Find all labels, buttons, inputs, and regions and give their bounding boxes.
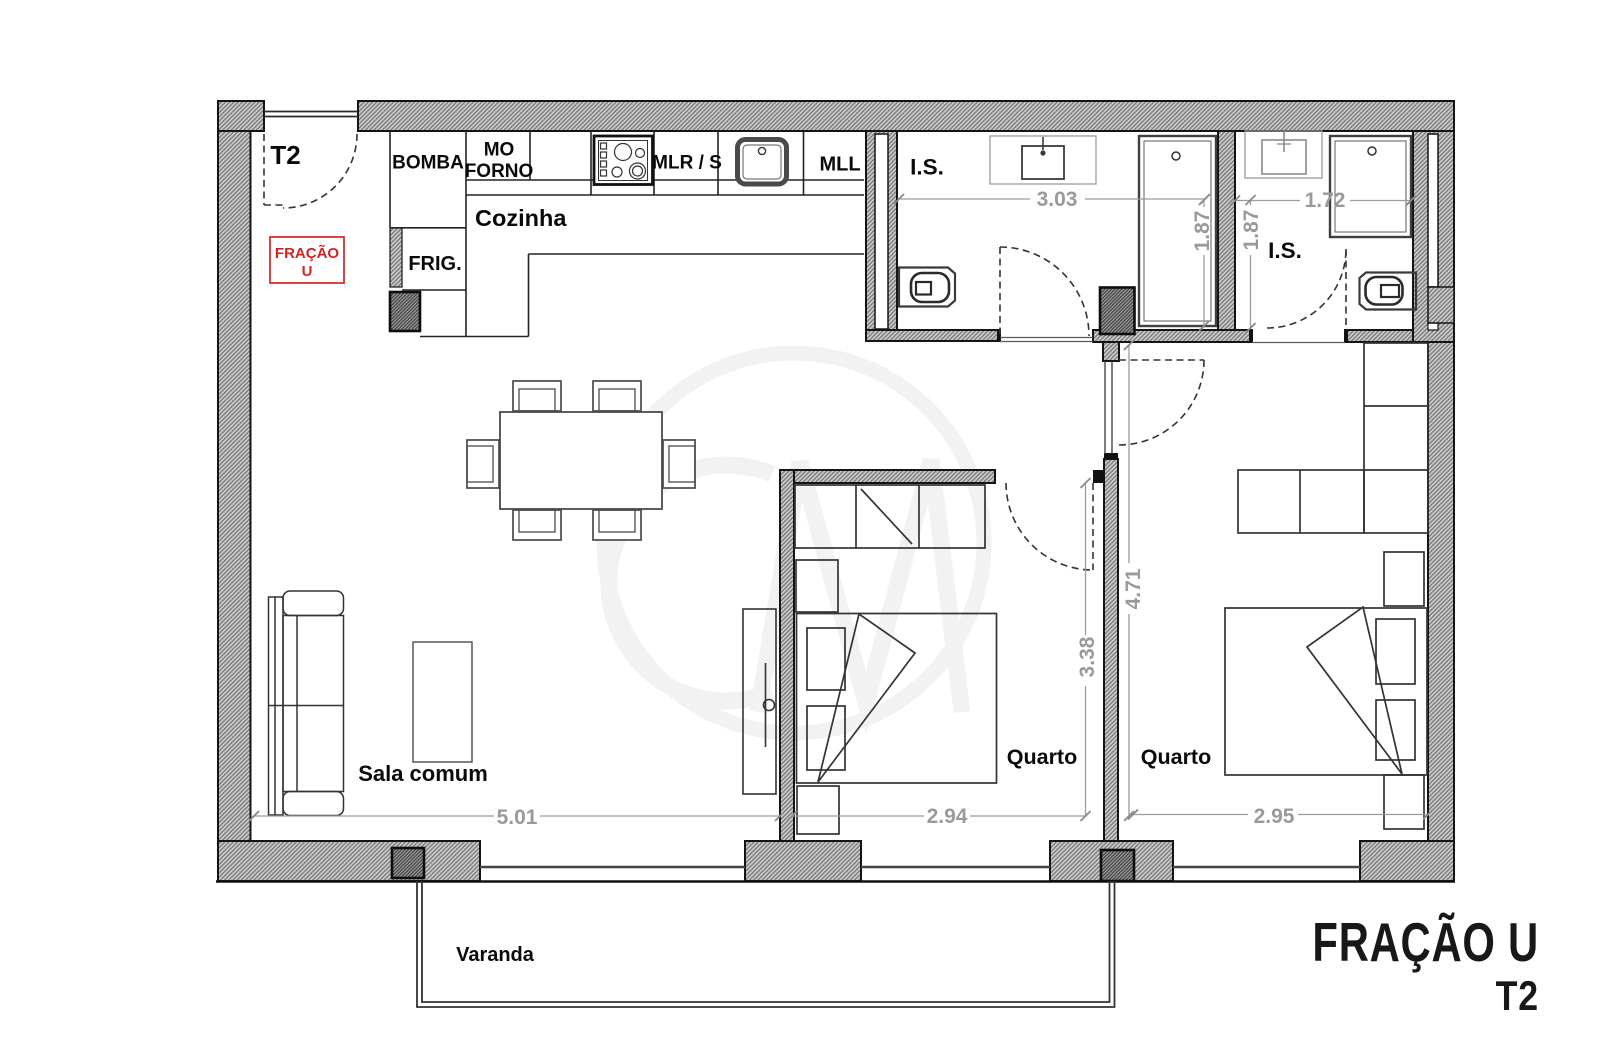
svg-text:I.S.: I.S. [1268, 238, 1302, 263]
svg-text:T2: T2 [270, 140, 300, 170]
svg-text:1.87: 1.87 [1240, 210, 1263, 251]
svg-text:U: U [302, 263, 313, 280]
svg-text:Varanda: Varanda [456, 944, 535, 966]
svg-text:FRAÇÃO U: FRAÇÃO U [1312, 913, 1539, 974]
svg-text:FRIG.: FRIG. [408, 253, 461, 275]
svg-text:Sala comum: Sala comum [358, 761, 488, 786]
svg-text:MO: MO [484, 140, 515, 161]
svg-text:3.38: 3.38 [1076, 636, 1099, 677]
svg-text:MLR / S: MLR / S [652, 153, 722, 174]
svg-text:T2: T2 [1496, 973, 1539, 1019]
svg-text:2.94: 2.94 [927, 805, 968, 828]
svg-text:1.87: 1.87 [1191, 211, 1214, 252]
svg-text:Cozinha: Cozinha [475, 205, 567, 231]
svg-text:3.03: 3.03 [1037, 188, 1078, 211]
svg-text:4.71: 4.71 [1122, 568, 1145, 609]
svg-text:Quarto: Quarto [1007, 745, 1077, 769]
svg-text:Quarto: Quarto [1141, 745, 1211, 769]
svg-text:2.95: 2.95 [1254, 805, 1295, 828]
svg-text:BOMBA: BOMBA [392, 153, 464, 174]
svg-text:5.01: 5.01 [497, 806, 538, 829]
svg-text:1.72: 1.72 [1305, 189, 1346, 212]
svg-text:MLL: MLL [819, 154, 860, 176]
svg-text:I.S.: I.S. [910, 155, 944, 180]
svg-text:FRAÇÃO: FRAÇÃO [275, 244, 339, 262]
svg-text:FORNO: FORNO [465, 161, 534, 182]
